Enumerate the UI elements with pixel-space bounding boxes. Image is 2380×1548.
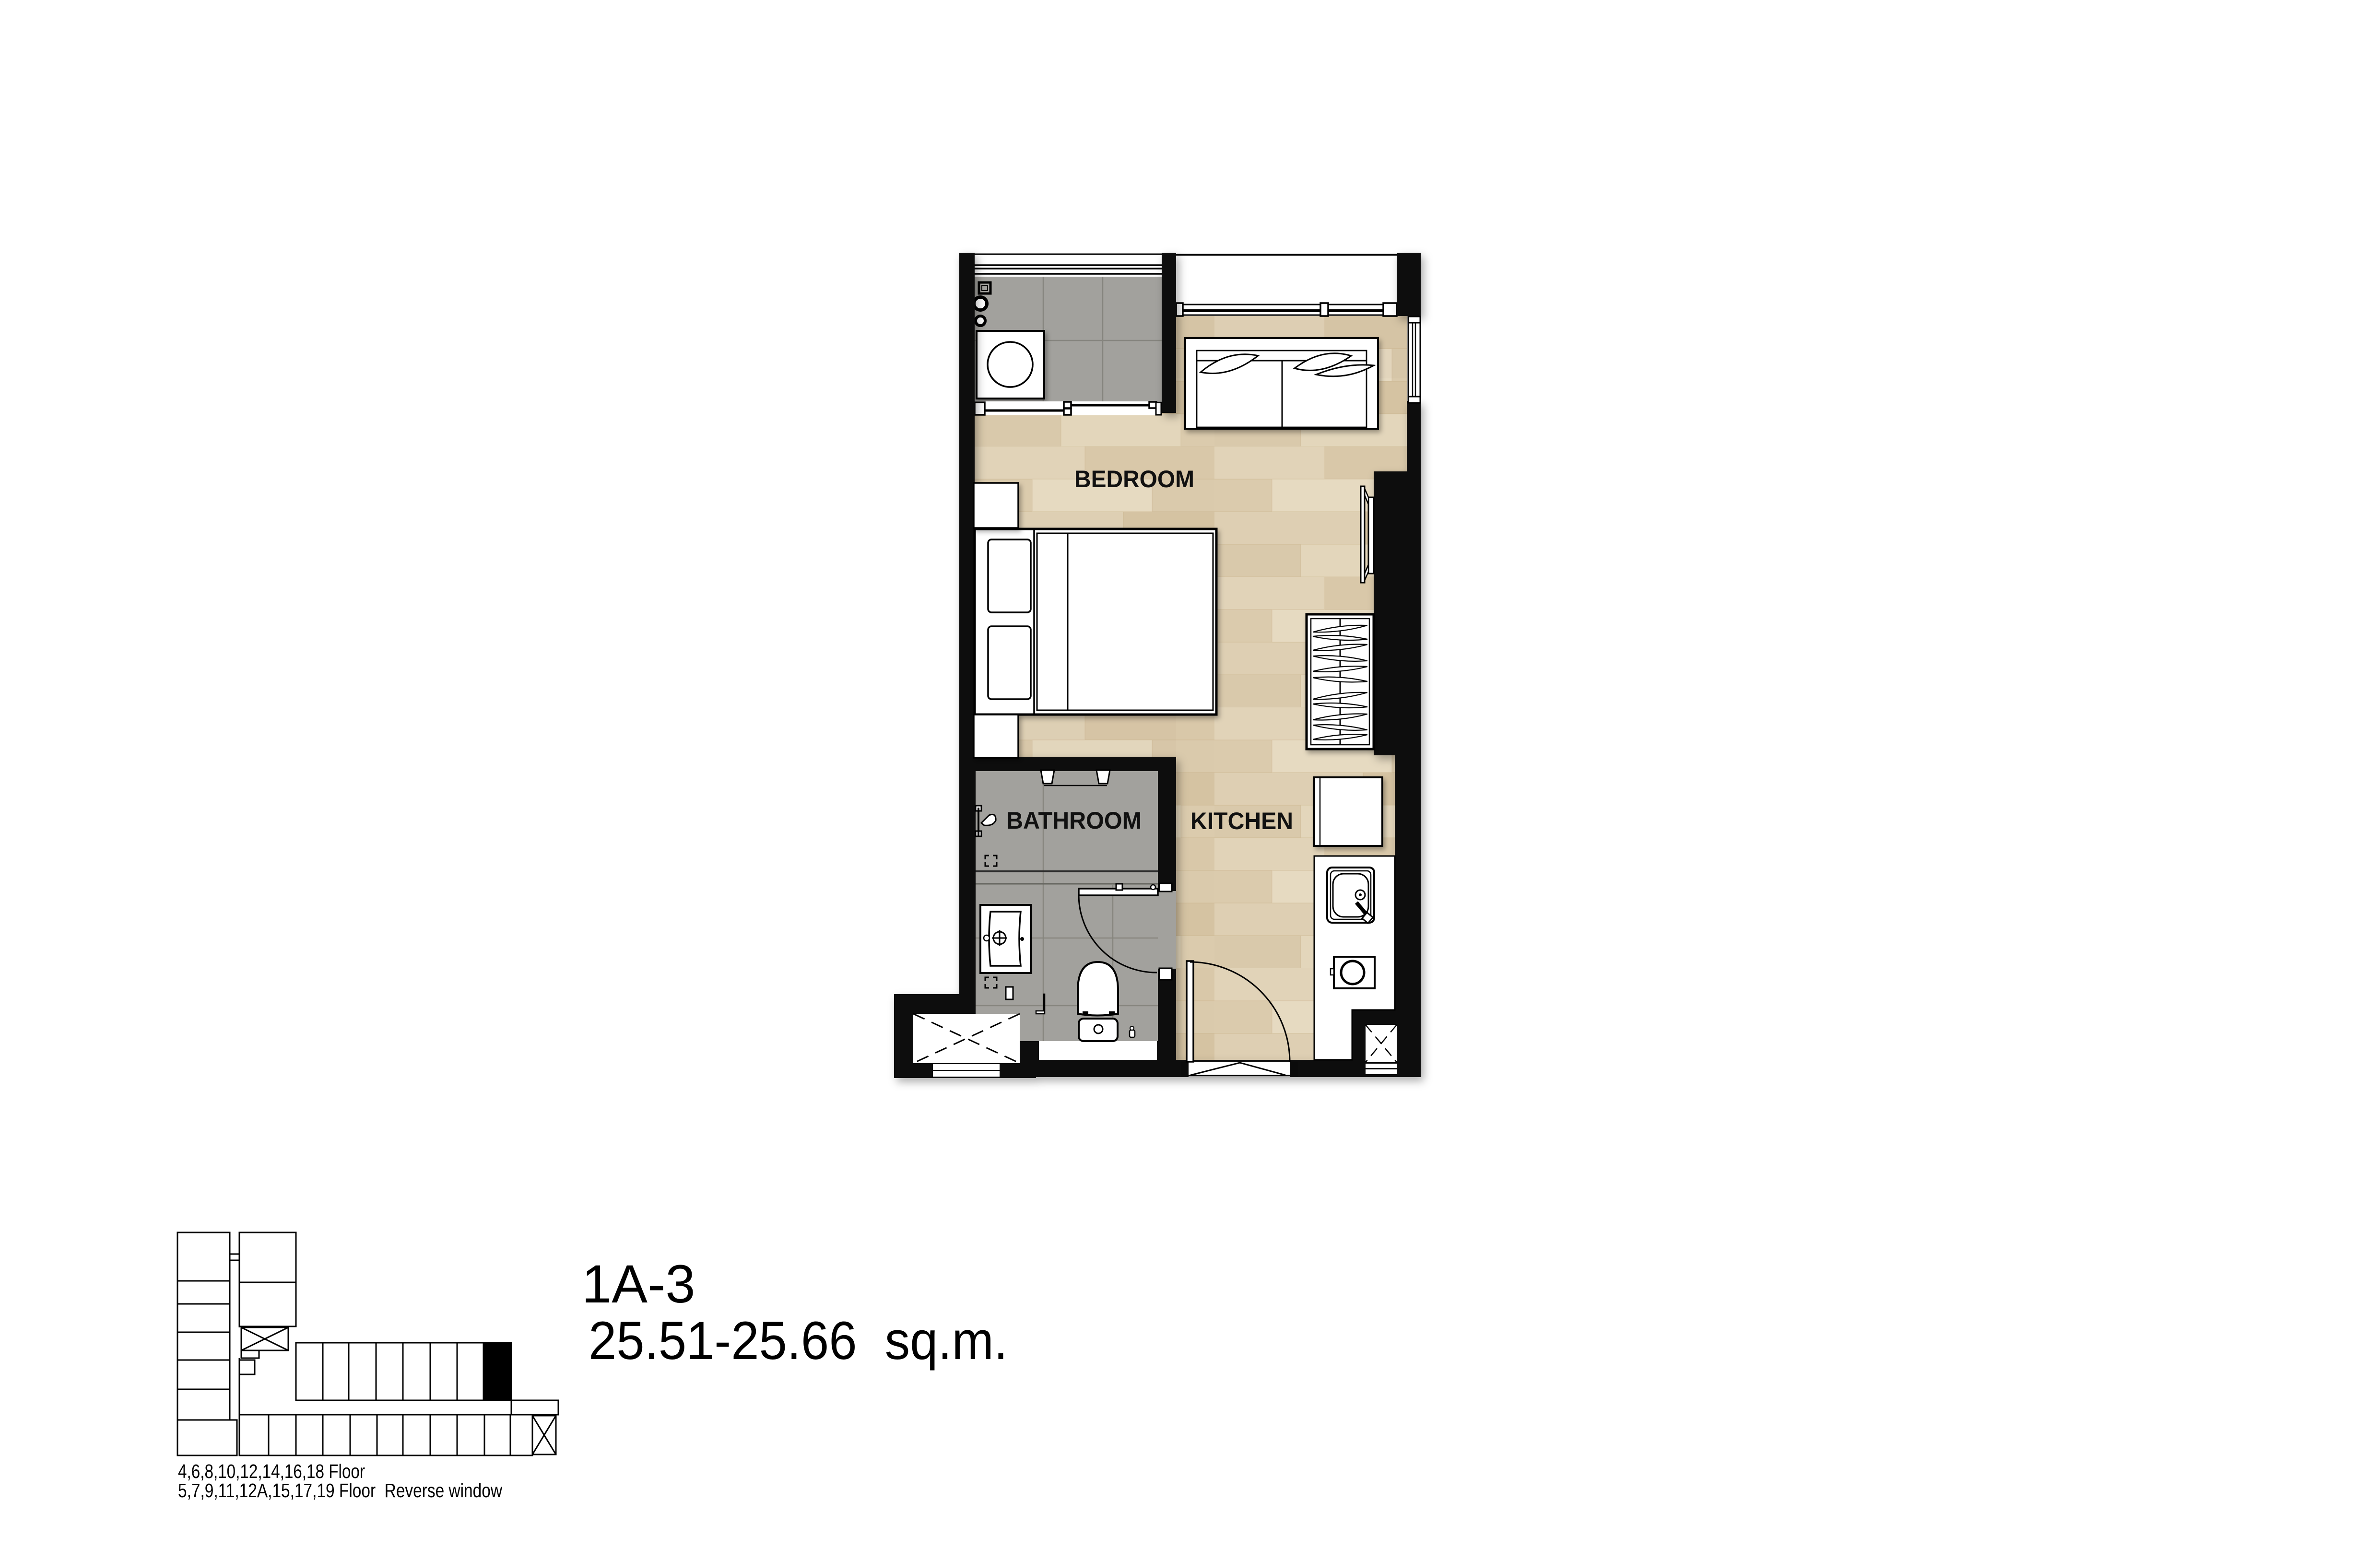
svg-text:BEDROOM: BEDROOM xyxy=(1074,466,1194,493)
svg-text:BATHROOM: BATHROOM xyxy=(1006,807,1142,834)
svg-text:25.51-25.66 sq.m.: 25.51-25.66 sq.m. xyxy=(589,1311,1008,1371)
svg-text:KITCHEN: KITCHEN xyxy=(1190,808,1293,834)
svg-text:1A-3: 1A-3 xyxy=(582,1254,695,1314)
svg-text:5,7,9,11,12A,15,17,19 Floor R: 5,7,9,11,12A,15,17,19 Floor Reverse wind… xyxy=(178,1479,502,1501)
